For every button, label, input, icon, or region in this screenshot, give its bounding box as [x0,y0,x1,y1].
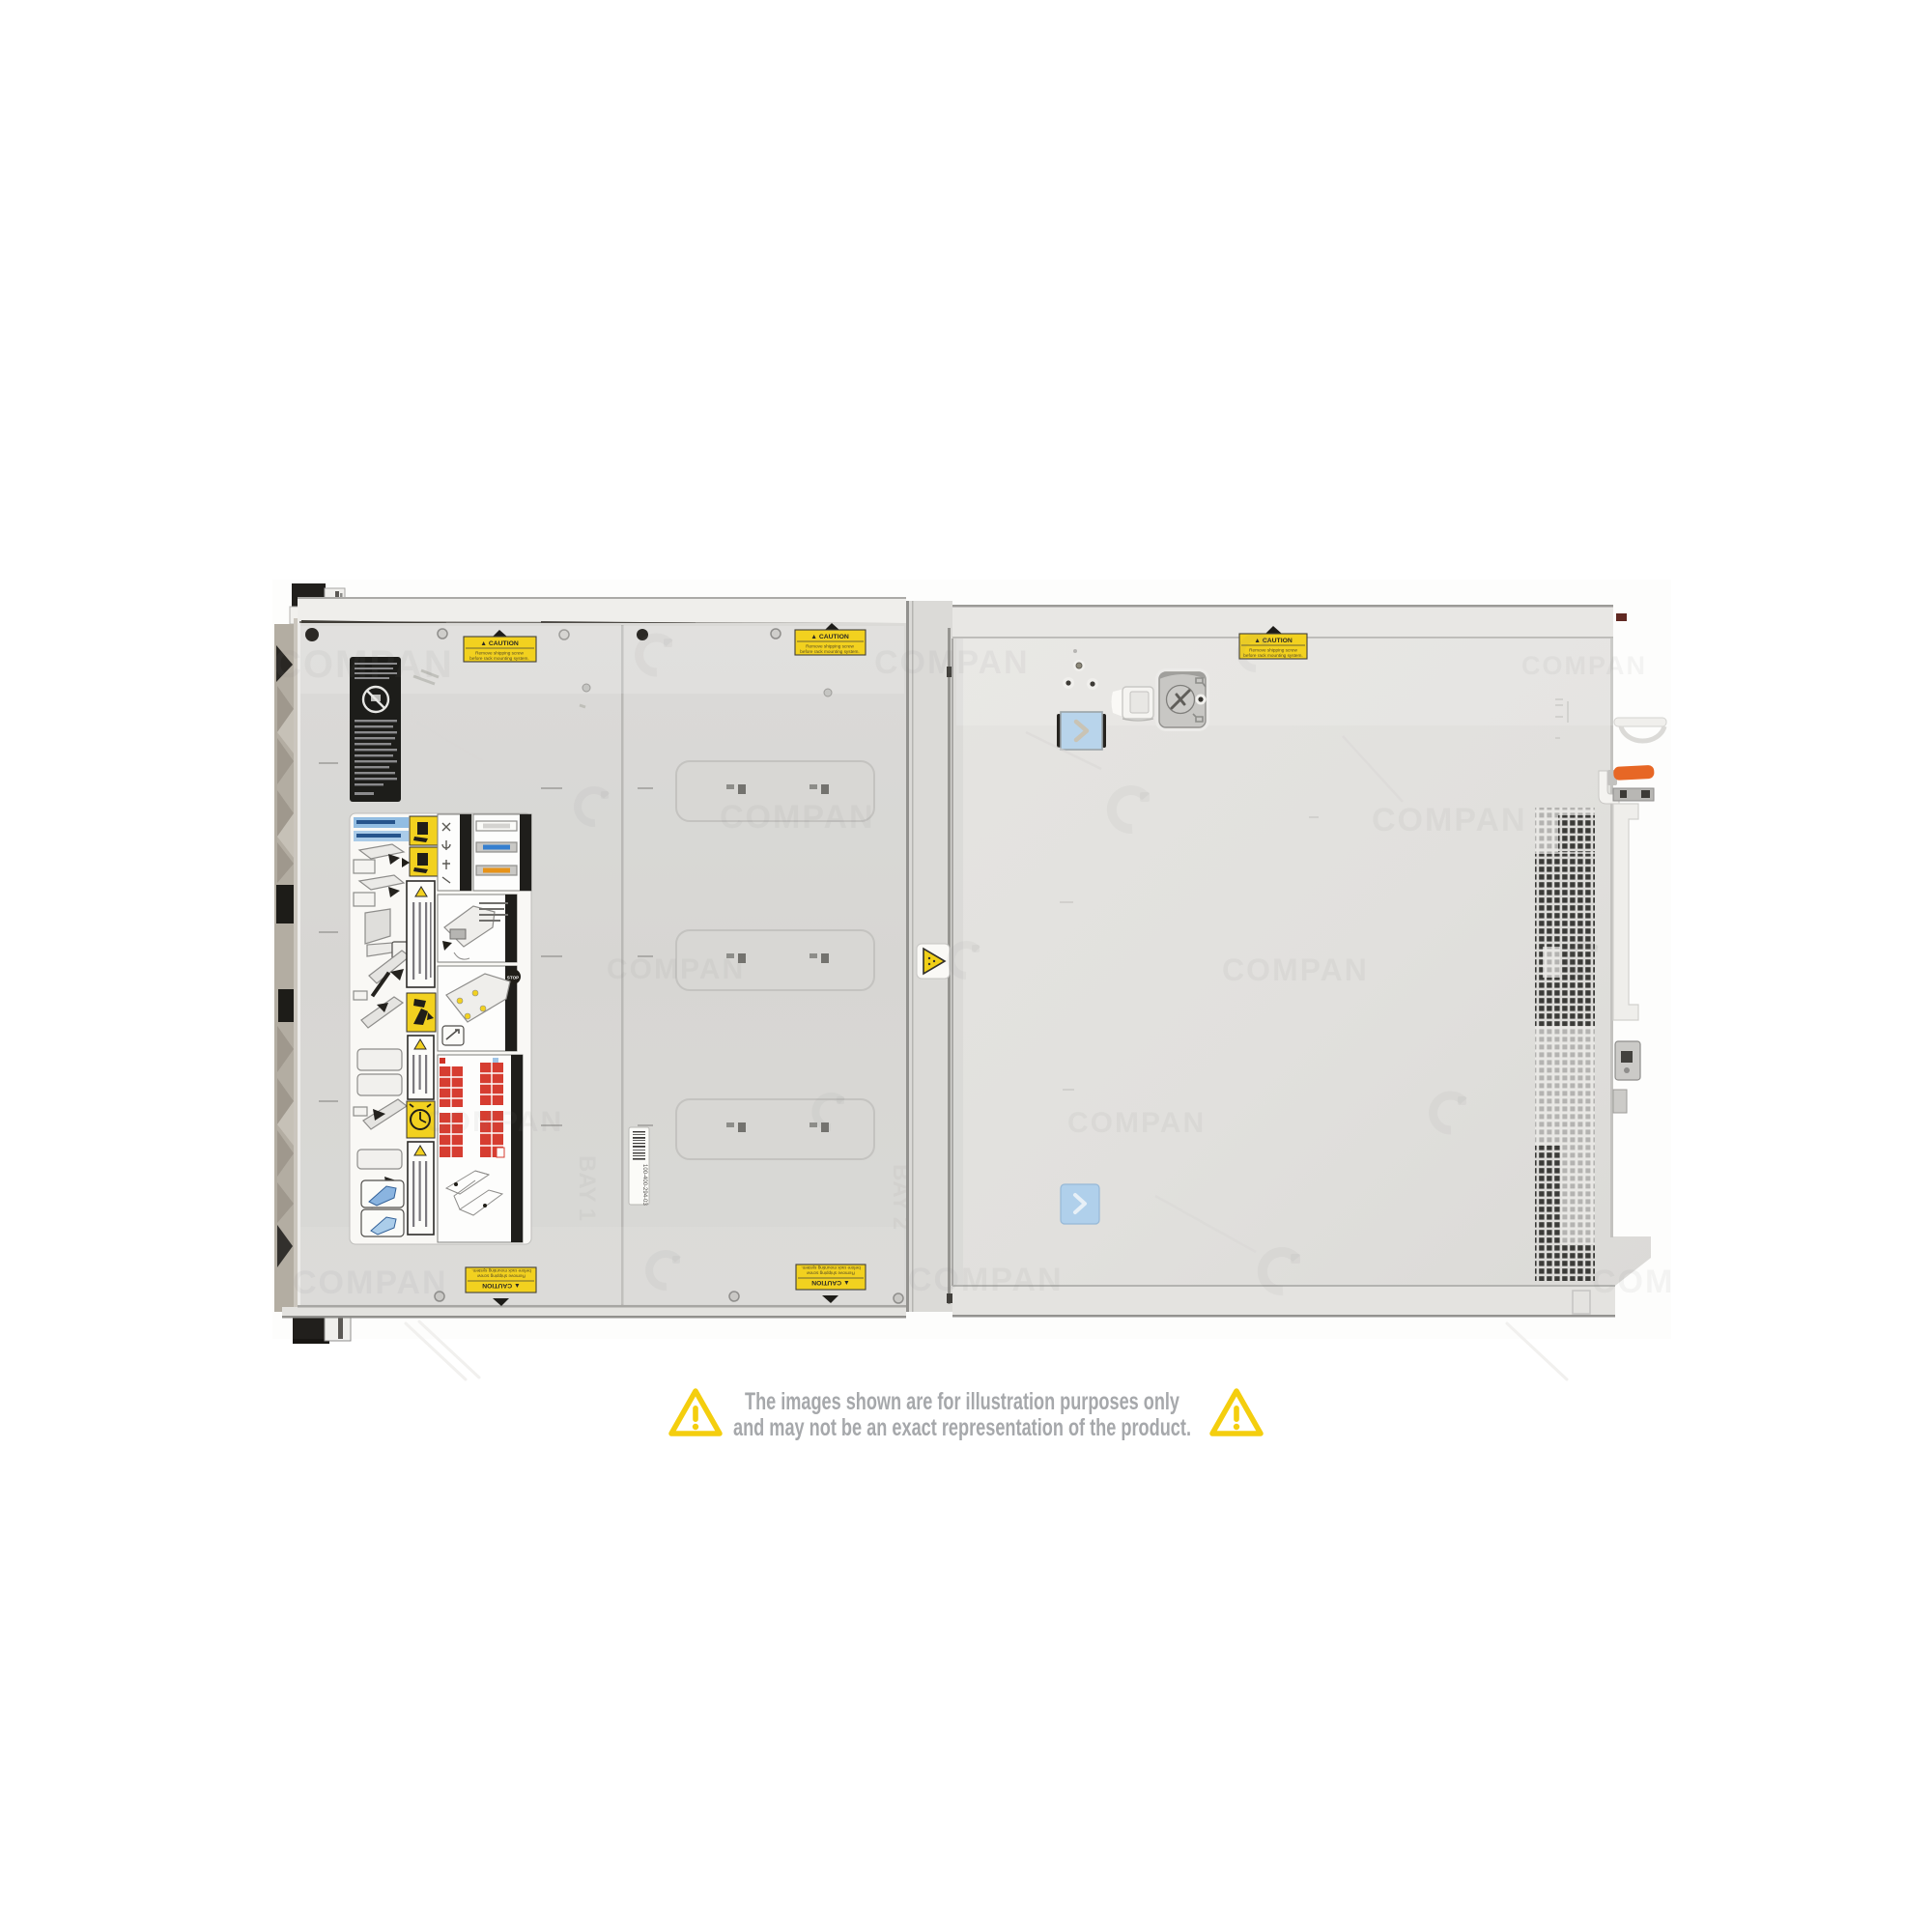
svg-text:COMPAN: COMPAN [425,1106,563,1138]
svg-text:COMPAN: COMPAN [1222,952,1369,987]
svg-text:COMPAN: COMPAN [1067,1107,1206,1139]
svg-text:COMPAN: COMPAN [908,1262,1064,1298]
svg-text:COMPAN: COMPAN [874,644,1030,681]
svg-text:and may not be an exact repres: and may not be an exact representation o… [733,1414,1191,1441]
svg-text:COMPAN: COMPAN [293,1264,448,1301]
svg-text:COMPAN: COMPAN [1372,802,1527,838]
svg-text:COMPAN: COMPAN [607,953,745,985]
svg-text:COMPAN: COMPAN [720,799,875,836]
svg-text:COMPAN: COMPAN [1521,651,1647,680]
svg-text:COMPAN: COMPAN [273,643,454,686]
svg-text:The images shown are for illus: The images shown are for illustration pu… [745,1388,1179,1415]
